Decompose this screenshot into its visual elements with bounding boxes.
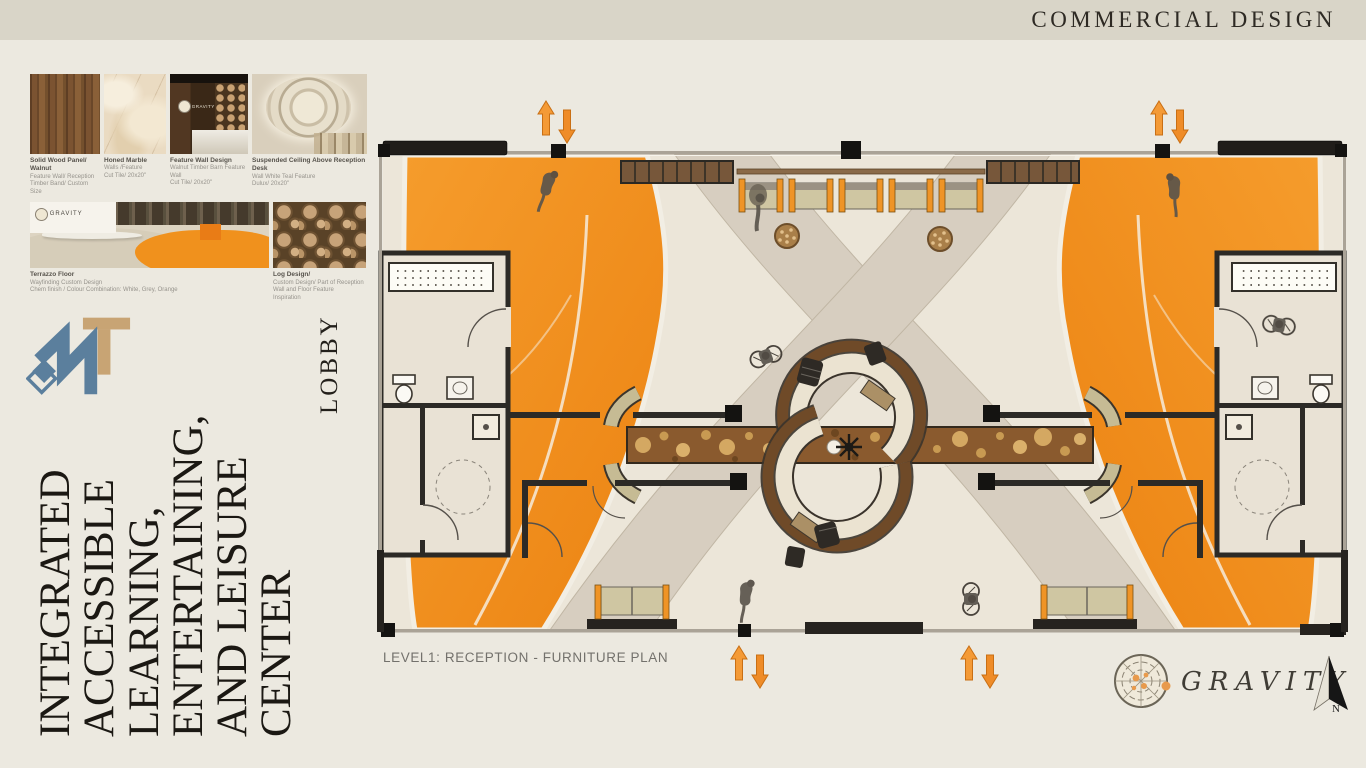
planter-shelf-left xyxy=(621,161,733,183)
plan-caption: LEVEL1: RECEPTION - FURNITURE PLAN xyxy=(383,650,668,665)
material-photo-lobby-render: GRAVITY xyxy=(30,202,269,268)
svg-text:N: N xyxy=(1332,703,1340,715)
material-card-feature-wall: GRAVITY Feature Wall Design Walnut Timbe… xyxy=(170,74,248,188)
planter-shelf-right xyxy=(987,161,1079,183)
entry-arrows-top-left xyxy=(538,101,575,143)
page-title: COMMERCIAL DESIGN xyxy=(1031,7,1336,33)
photo-ceiling-strip xyxy=(170,74,248,83)
title-line: CENTER xyxy=(255,385,299,737)
entry-arrows-top-right xyxy=(1151,101,1188,143)
material-card-terrazzo: GRAVITY Terrazzo Floor Wayfinding Custom… xyxy=(30,202,269,294)
photo-log-wall xyxy=(215,83,245,130)
orange-bench xyxy=(200,224,222,240)
material-card-wood: Solid Wood Panel/ Walnut Feature Wall/ R… xyxy=(30,74,100,196)
material-photo-marble xyxy=(104,74,166,154)
presentation-slide: COMMERCIAL DESIGN Solid Wood Panel/ Waln… xyxy=(0,0,1366,768)
bench-bottom-left xyxy=(587,585,677,632)
project-title: INTEGRATED ACCESSIBLE LEARNING, ENTERTAI… xyxy=(34,385,300,737)
gravity-circle-icon xyxy=(1110,650,1174,714)
gravity-wall-logo: GRAVITY xyxy=(178,100,215,113)
material-card-logs: Log Design/ Custom Design/ Part of Recep… xyxy=(273,202,366,302)
material-name: Log Design/ xyxy=(273,271,366,279)
entry-arrows-bottom-right xyxy=(961,646,998,688)
materials-row-2: GRAVITY Terrazzo Floor Wayfinding Custom… xyxy=(30,202,370,302)
material-name: Terrazzo Floor xyxy=(30,271,269,279)
material-name: Solid Wood Panel/ Walnut xyxy=(30,157,100,174)
gravity-wall-logo: GRAVITY xyxy=(35,208,83,221)
room-label: LOBBY xyxy=(316,314,344,414)
materials-panel: Solid Wood Panel/ Walnut Feature Wall/ R… xyxy=(30,74,370,308)
title-line: ENTERTAINING, xyxy=(167,385,211,737)
material-card-marble: Honed Marble Walls /Feature Cut Tile/ 20… xyxy=(104,74,166,180)
material-card-ceiling: Suspended Ceiling Above Reception Desk W… xyxy=(252,74,367,189)
material-photo-logs xyxy=(273,202,366,268)
material-name: Feature Wall Design xyxy=(170,157,248,165)
entry-arrows-bottom-left xyxy=(731,646,768,688)
gravity-circle-icon xyxy=(35,208,48,221)
log-planter-1 xyxy=(775,224,799,248)
material-photo-ceiling xyxy=(252,74,367,154)
material-name: Honed Marble xyxy=(104,157,166,165)
bench-row-top xyxy=(739,179,983,212)
photo-reception-desk xyxy=(192,130,248,154)
title-line: ACCESSIBLE xyxy=(78,385,122,737)
ceiling-wall-slits xyxy=(314,133,367,154)
material-name: Suspended Ceiling Above Reception Desk xyxy=(252,157,367,174)
north-arrow-icon: N xyxy=(1302,652,1356,720)
wall-shelf-line xyxy=(737,169,985,174)
restroom-block-right xyxy=(1214,253,1344,555)
gravity-circle-icon xyxy=(178,100,191,113)
materials-row-1: Solid Wood Panel/ Walnut Feature Wall/ R… xyxy=(30,74,370,196)
material-photo-feature-wall: GRAVITY xyxy=(170,74,248,154)
log-planter-2 xyxy=(928,227,952,251)
title-line: INTEGRATED xyxy=(34,385,78,737)
title-line: LEARNING, xyxy=(123,385,167,737)
floor-plan xyxy=(375,95,1350,695)
ceiling-rings xyxy=(266,77,351,138)
bench-bottom-right xyxy=(1033,585,1137,632)
restroom-block-left xyxy=(381,253,511,555)
title-line: AND LEISURE xyxy=(211,385,255,737)
material-photo-wood xyxy=(30,74,100,154)
